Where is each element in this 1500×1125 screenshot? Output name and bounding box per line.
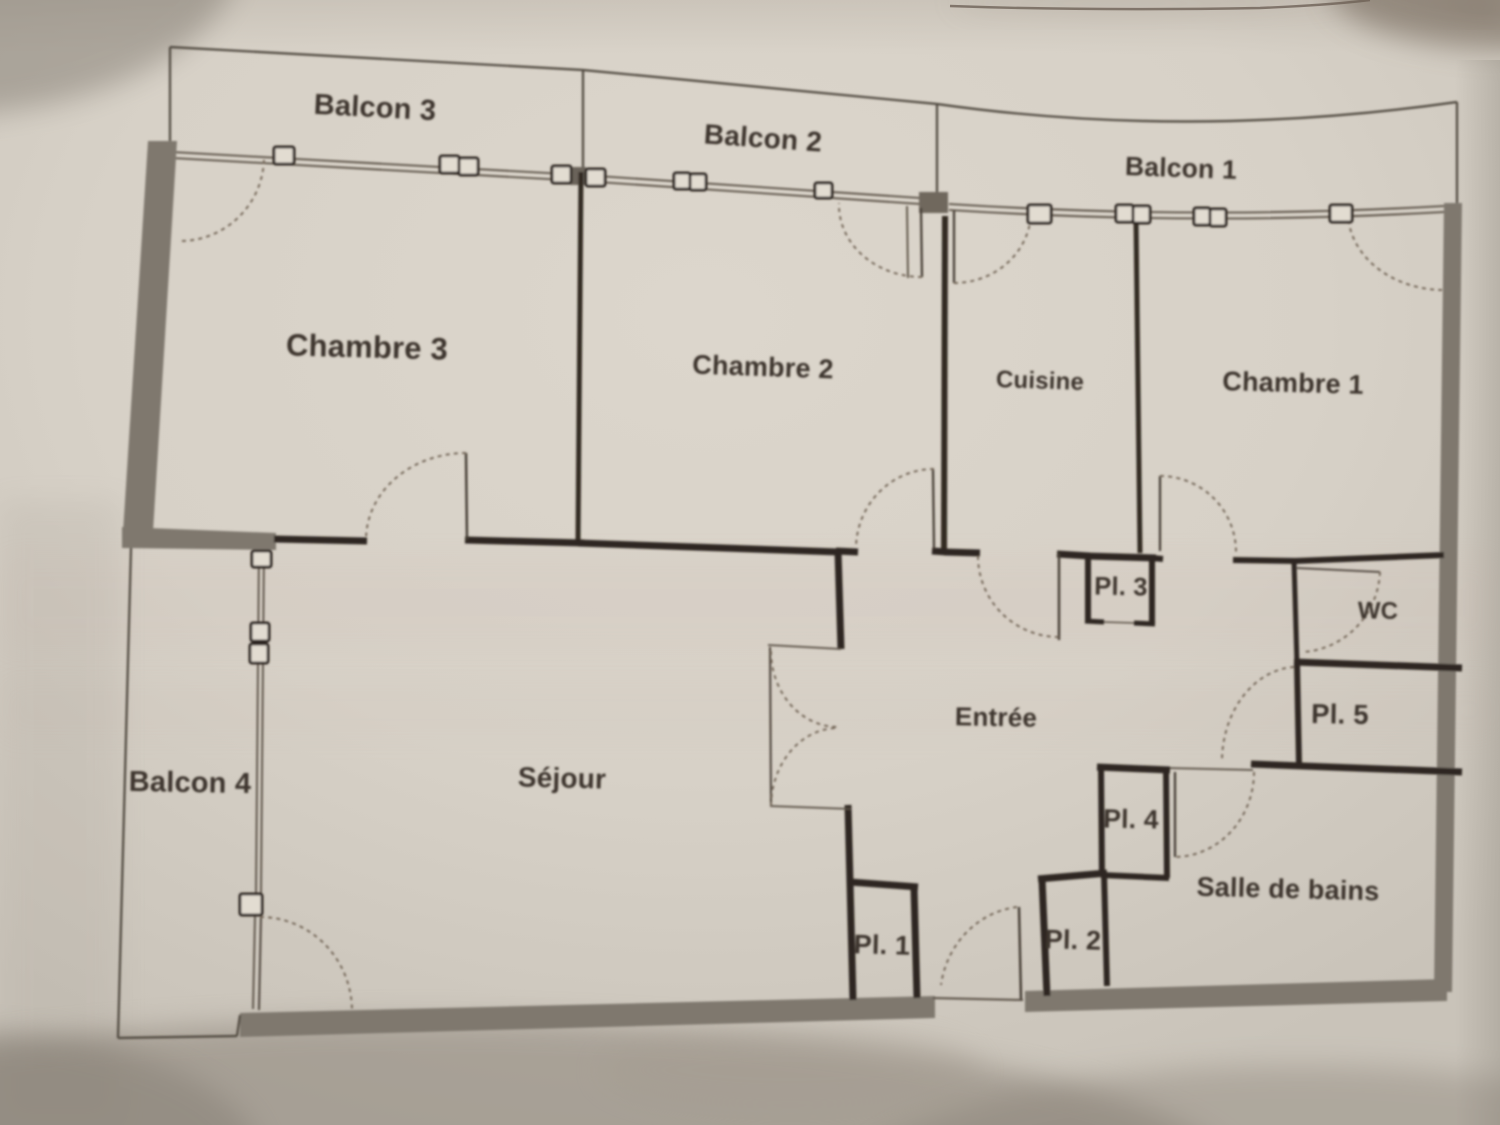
svg-text:Chambre 2: Chambre 2 (692, 350, 834, 385)
svg-text:Balcon 3: Balcon 3 (313, 89, 437, 127)
svg-text:Chambre 3: Chambre 3 (286, 327, 449, 366)
svg-text:Entrée: Entrée (955, 701, 1038, 732)
svg-text:Séjour: Séjour (517, 761, 606, 794)
svg-text:WC: WC (1358, 597, 1399, 625)
svg-text:Pl. 2: Pl. 2 (1044, 924, 1101, 955)
svg-text:Pl. 3: Pl. 3 (1094, 573, 1148, 602)
svg-text:Pl. 1: Pl. 1 (853, 929, 910, 960)
svg-text:Pl. 5: Pl. 5 (1311, 698, 1369, 730)
svg-text:Salle de bains: Salle de bains (1196, 872, 1380, 907)
svg-text:Cuisine: Cuisine (996, 366, 1085, 396)
svg-text:Pl. 4: Pl. 4 (1103, 804, 1159, 835)
svg-text:Balcon 4: Balcon 4 (128, 766, 251, 800)
svg-text:Balcon 1: Balcon 1 (1124, 151, 1237, 185)
svg-text:Chambre 1: Chambre 1 (1222, 366, 1364, 400)
